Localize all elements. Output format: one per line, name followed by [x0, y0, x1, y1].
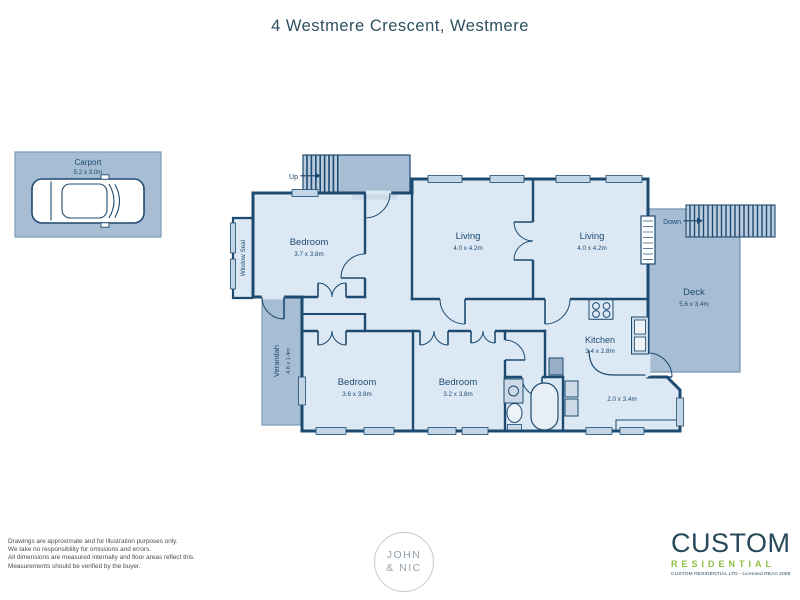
fireplace	[641, 216, 655, 264]
living1-dims: 4.0 x 4.2m	[453, 245, 482, 252]
living1-label: Living	[456, 231, 481, 242]
bedroom2-dims: 3.6 x 3.8m	[342, 391, 371, 398]
bedroom3-dims: 3.2 x 3.8m	[443, 391, 472, 398]
custom-logo-residential: RESIDENTIAL	[671, 559, 797, 569]
window-seat-label: Window Seat	[240, 239, 247, 276]
carport-dims: 5.2 x 3.0m	[74, 169, 103, 176]
john-nic-line2: & NIC	[386, 562, 422, 575]
disclaimer: Drawings are approximate and for illustr…	[8, 538, 195, 571]
up-stairs	[303, 155, 410, 193]
disclaimer-line: All dimensions are measured internally a…	[8, 554, 195, 562]
shower	[504, 379, 523, 403]
bedroom3-label: Bedroom	[439, 377, 478, 388]
entry-dims: 2.0 x 3.4m	[607, 396, 636, 403]
entry-step	[352, 195, 398, 200]
up-label: Up	[289, 174, 298, 181]
verandah-dims: 4.8 x 1.4m	[286, 348, 292, 374]
kitchen-dims: 3.4 x 2.8m	[585, 348, 614, 355]
living2-dims: 4.0 x 4.2m	[577, 245, 606, 252]
john-nic-logo: JOHN & NIC	[374, 532, 434, 592]
verandah-label: Verandah	[272, 345, 281, 377]
deck-label: Deck	[683, 287, 705, 298]
disclaimer-line: Drawings are approximate and for illustr…	[8, 538, 195, 546]
page-title: 4 Westmere Crescent, Westmere	[0, 17, 800, 36]
bedroom1-dims: 3.7 x 3.8m	[294, 251, 323, 258]
car-icon	[32, 175, 144, 227]
verandah-slab	[262, 297, 301, 425]
down-label: Down	[663, 219, 681, 226]
kitchen-stove	[589, 300, 613, 320]
john-nic-line1: JOHN	[387, 549, 422, 562]
disclaimer-line: We take no responsibility for omissions …	[8, 546, 195, 554]
custom-logo-tagline: CUSTOM RESIDENTIAL LTD - Licensed REAA 2…	[671, 572, 797, 577]
kitchen-label: Kitchen	[585, 335, 615, 345]
floorplan-page: 4 Westmere Crescent, Westmere Carport 5.…	[0, 0, 800, 600]
bathtub	[531, 383, 558, 430]
carport: Carport 5.2 x 3.0m	[15, 152, 161, 237]
entry-cabinets	[565, 381, 578, 416]
kitchen-sink	[632, 317, 649, 354]
disclaimer-line: Measurements should be verified by the b…	[8, 563, 195, 571]
floorplan-svg: Carport 5.2 x 3.0m	[0, 0, 800, 600]
carport-label: Carport	[75, 158, 102, 167]
custom-logo-word: CUSTOM	[671, 530, 797, 557]
laundry-cabinet	[549, 358, 563, 375]
bedroom1-label: Bedroom	[290, 237, 329, 248]
deck	[648, 205, 775, 372]
toilet	[507, 404, 522, 431]
bedroom2-label: Bedroom	[338, 377, 377, 388]
living2-label: Living	[580, 231, 605, 242]
custom-residential-logo: CUSTOM RESIDENTIAL CUSTOM RESIDENTIAL LT…	[671, 530, 797, 577]
deck-dims: 5.6 x 3.4m	[679, 301, 708, 308]
